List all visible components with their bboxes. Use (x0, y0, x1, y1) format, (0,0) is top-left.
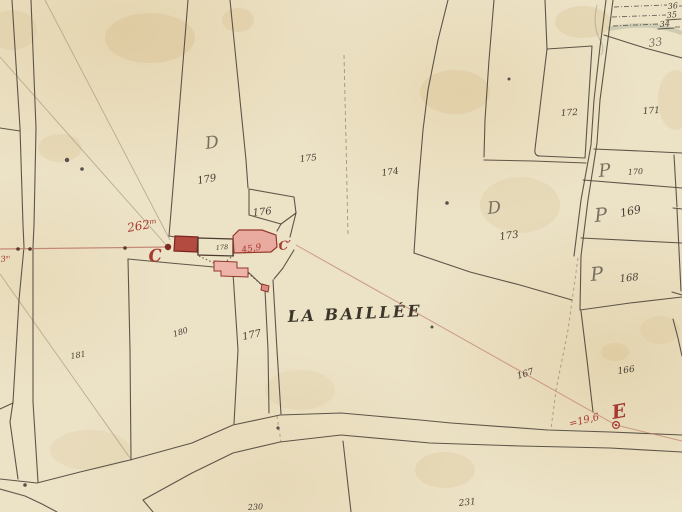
boundary-line (128, 259, 131, 460)
boundary-line (31, 0, 38, 482)
boundary-line (343, 441, 351, 512)
boundary-line (0, 403, 13, 409)
red-letter-c: C (148, 246, 164, 267)
owner-letter-p-169: P (593, 204, 610, 227)
buildings (174, 230, 277, 292)
dashed-boundary-175-174 (344, 55, 348, 235)
red-letter-e: E (609, 400, 629, 424)
parcel-176-outline (249, 189, 296, 224)
boundary-line (484, 0, 494, 157)
parcel-number-179: 179 (197, 173, 218, 187)
pencil-line (0, 274, 130, 458)
parcel-number-173: 173 (499, 229, 519, 243)
parcel-number-168: 168 (619, 272, 639, 285)
red-letter-c-prime: C′ (278, 238, 293, 253)
boundary-line (414, 0, 448, 253)
building-pink-small (214, 261, 248, 277)
section-letter-d-center: D (485, 198, 502, 219)
parcel-number-177: 177 (241, 328, 263, 343)
red-traverse-west (0, 247, 168, 249)
boundary-line (545, 0, 547, 49)
building-parcel-number-178: 178 (215, 243, 228, 252)
red-measure-3m: 3ᵐ (0, 254, 11, 264)
boundary-line (233, 273, 238, 424)
parcel-number-170: 170 (628, 167, 644, 177)
ink-spots (23, 78, 510, 487)
boundary-line (169, 236, 175, 237)
boundary-line (248, 272, 263, 286)
boundary-line (277, 224, 281, 231)
parcel-number-180: 180 (172, 326, 189, 339)
parcel-number-175: 175 (299, 153, 317, 165)
boundary-line (581, 311, 593, 412)
red-measure-19-6: =19,6 (568, 412, 601, 430)
station-dot (28, 247, 32, 251)
boundary-line (674, 155, 677, 207)
parcel-172-outline (535, 46, 592, 158)
red-measure-262m: 262ᵐ (125, 216, 158, 235)
station-point-e-center (615, 424, 617, 426)
parcel-number-166: 166 (617, 365, 636, 377)
boundary-line (10, 0, 24, 479)
owner-letter-p-170: P (597, 160, 613, 182)
parcel-number-174: 174 (381, 167, 400, 179)
parcel-number-176: 176 (252, 206, 273, 219)
red-survey (0, 244, 682, 441)
boundary-line (594, 149, 682, 153)
boundary-line (484, 160, 586, 163)
place-name-label: LA BAILLÉE (286, 300, 422, 326)
cadastral-map: 3635343317217117016916817317417517617917… (0, 0, 682, 512)
building-solid-red (174, 236, 198, 252)
boundary-line (580, 297, 682, 310)
dotted-tie (199, 256, 216, 264)
boundary-line (583, 180, 682, 188)
boundary-line (677, 209, 681, 291)
boundary-line (581, 238, 682, 243)
boundary-line (672, 292, 682, 295)
strip-number-34: 34 (659, 19, 670, 29)
strip-line-36 (614, 5, 667, 7)
parcel-number-33: 33 (648, 35, 664, 50)
boundary-line (604, 35, 682, 58)
boundary-line (414, 253, 572, 300)
parcel-number-167: 167 (516, 367, 536, 382)
parcel-number-231: 231 (457, 497, 476, 509)
station-point-c (165, 244, 171, 250)
section-letter-d-west: D (203, 132, 221, 154)
cadastral-map-page: 3635343317217117016916817317417517617917… (0, 0, 682, 512)
boundary-line (128, 259, 214, 267)
parcel-number-172: 172 (561, 108, 579, 119)
owner-letter-p-168: P (589, 263, 606, 286)
road-edge-lower (143, 435, 682, 512)
parcel-number-169: 169 (619, 203, 642, 220)
road-fork-edge (0, 489, 57, 512)
boundary-line (0, 128, 20, 131)
lane-top-marker (261, 284, 269, 292)
stream-band (608, 25, 682, 34)
station-dot (123, 246, 127, 250)
parcel-number-230: 230 (247, 502, 264, 512)
parcel-number-171: 171 (643, 106, 661, 117)
strip-line-35 (612, 15, 666, 17)
parcel-number-181: 181 (70, 349, 87, 361)
station-dot (16, 247, 20, 251)
boundary-line (274, 250, 294, 279)
road-fading (551, 258, 578, 429)
